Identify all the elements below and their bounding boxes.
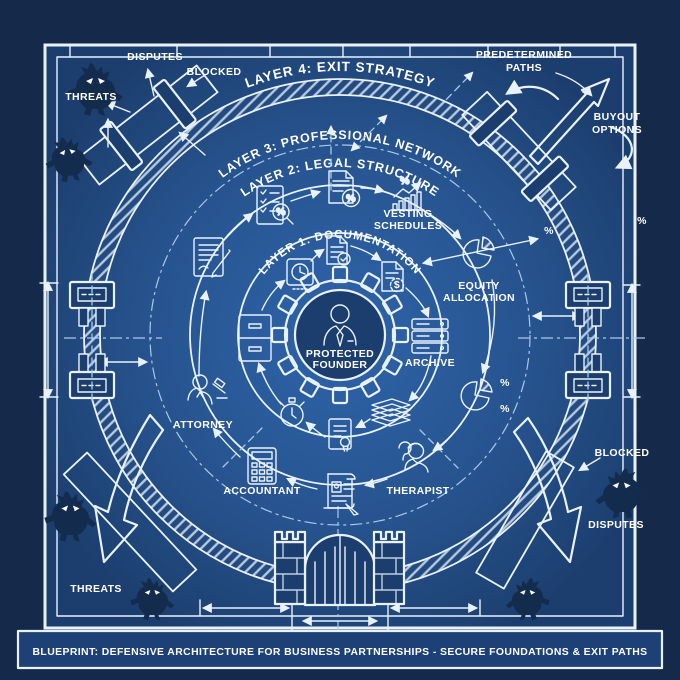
- predetermined-label-line1: PREDETERMINED: [476, 49, 572, 61]
- vesting-label-line1: VESTING: [384, 208, 433, 220]
- percent-mark-3: %: [544, 225, 554, 237]
- buyout-label-line2: OPTIONS: [592, 124, 642, 136]
- title-bar: BLUEPRINT: DEFENSIVE ARCHITECTURE FOR BU…: [18, 631, 662, 668]
- percent-mark-1: %: [500, 377, 510, 389]
- percent-mark-2: %: [500, 403, 510, 415]
- blueprint-diagram: LAYER 4: EXIT STRATEGY LAYER 3: PROFESSI…: [0, 0, 680, 680]
- castle-tower-right: [374, 532, 404, 604]
- percent-mark-4: %: [637, 215, 647, 227]
- equity-label-line2: ALLOCATION: [443, 292, 515, 304]
- founder-label-line2: FOUNDER: [313, 359, 368, 371]
- svg-text:%: %: [400, 175, 410, 187]
- buyout-label-line1: BUYOUT: [594, 111, 641, 123]
- equity-label-line1: EQUITY: [458, 280, 500, 292]
- blocked-label-right: BLOCKED: [595, 447, 650, 459]
- threats-label-top: THREATS: [65, 91, 117, 103]
- svg-text:%: %: [346, 193, 356, 205]
- blocked-label-top: BLOCKED: [187, 66, 242, 78]
- predetermined-label-line2: PATHS: [506, 62, 542, 74]
- svg-text:$: $: [394, 279, 400, 291]
- blueprint-title: BLUEPRINT: DEFENSIVE ARCHITECTURE FOR BU…: [33, 646, 648, 658]
- attorney-label: ATTORNEY: [173, 419, 233, 431]
- therapist-label: THERAPIST: [386, 485, 449, 497]
- disputes-label-top: DISPUTES: [127, 51, 183, 63]
- castle-tower-left: [275, 532, 305, 604]
- threats-label-bottom: THREATS: [70, 583, 122, 595]
- archive-label: ARCHIVE: [405, 357, 455, 369]
- portcullis-gate-icon: [305, 535, 375, 605]
- vesting-label-line2: SCHEDULES: [374, 220, 442, 232]
- svg-text:%: %: [276, 206, 286, 218]
- accountant-label: ACCOUNTANT: [223, 485, 300, 497]
- disputes-label-right: DISPUTES: [588, 519, 644, 531]
- south-castle-gate: [275, 532, 404, 605]
